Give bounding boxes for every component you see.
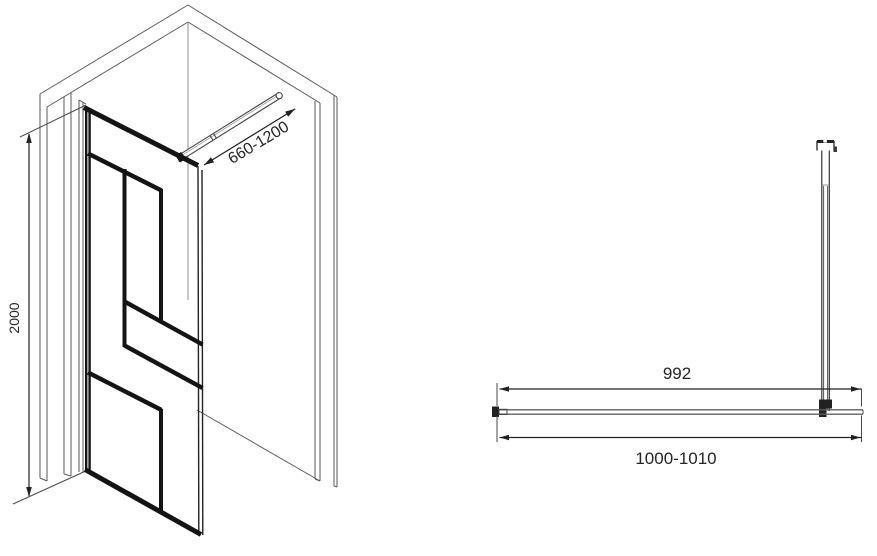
arrowhead [26,133,32,143]
dimension-glass-width: 992 [497,364,862,407]
arrowhead [285,106,297,116]
arrowhead [500,386,510,392]
wall-profile-top [492,407,499,418]
wall-profile [79,100,86,473]
technical-drawing-sheet: 660-1200 2000 [0,0,877,556]
dimension-overall-width: 1000-1010 [497,416,862,469]
arrowhead [202,157,214,167]
glass-width-label: 992 [663,364,691,383]
glass-panel-lattice [84,106,203,535]
shower-screen-drawing: 660-1200 2000 [0,0,877,556]
support-bar-top [817,140,837,417]
panel-height-label: 2000 [6,302,22,333]
arrowhead [851,435,861,441]
arrowhead [500,435,510,441]
arrowhead [851,386,861,392]
corner-walls [13,5,337,504]
bracket-screw [834,147,838,153]
overall-width-label: 1000-1010 [635,449,716,468]
wall-bracket [817,140,837,152]
glass-panel-top [492,407,863,418]
top-view: 992 1000-1010 [492,140,863,468]
dimension-height: 2000 [6,105,86,497]
isometric-view: 660-1200 2000 [6,5,337,535]
